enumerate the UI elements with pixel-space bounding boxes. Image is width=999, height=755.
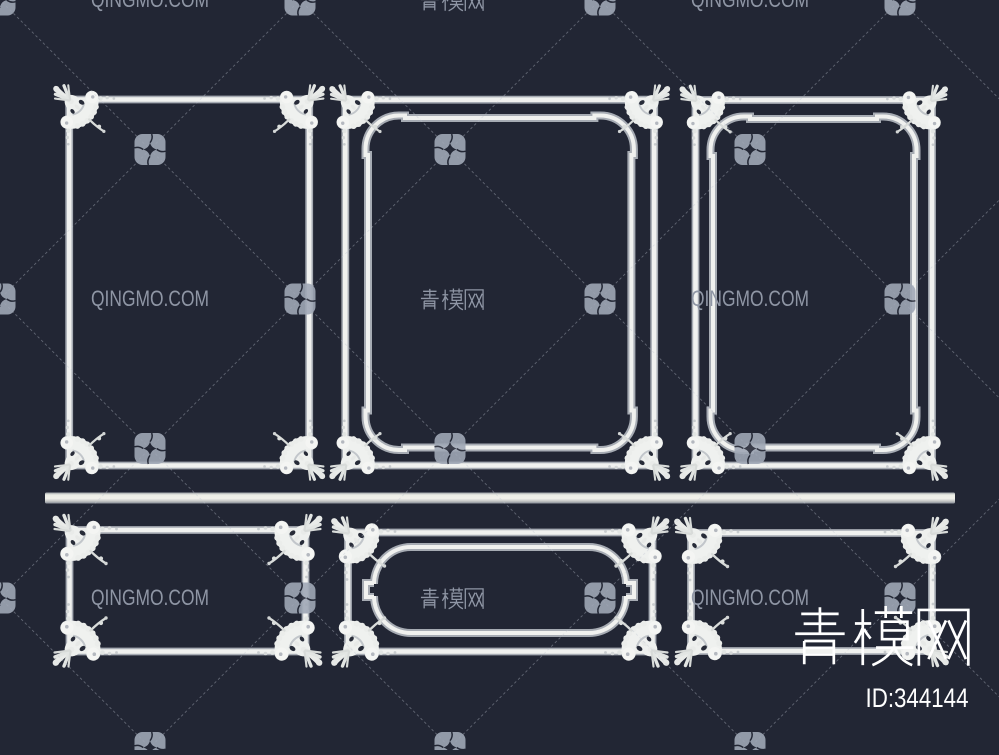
svg-text:QINGMO.COM: QINGMO.COM xyxy=(91,0,209,12)
svg-text:QINGMO.COM: QINGMO.COM xyxy=(691,286,809,311)
svg-text:QINGMO.COM: QINGMO.COM xyxy=(91,585,209,610)
svg-text:QINGMO.COM: QINGMO.COM xyxy=(91,286,209,311)
svg-text:QINGMO.COM: QINGMO.COM xyxy=(691,0,809,12)
svg-text:QINGMO.COM: QINGMO.COM xyxy=(691,585,809,610)
svg-text:ID:344144: ID:344144 xyxy=(866,683,969,713)
